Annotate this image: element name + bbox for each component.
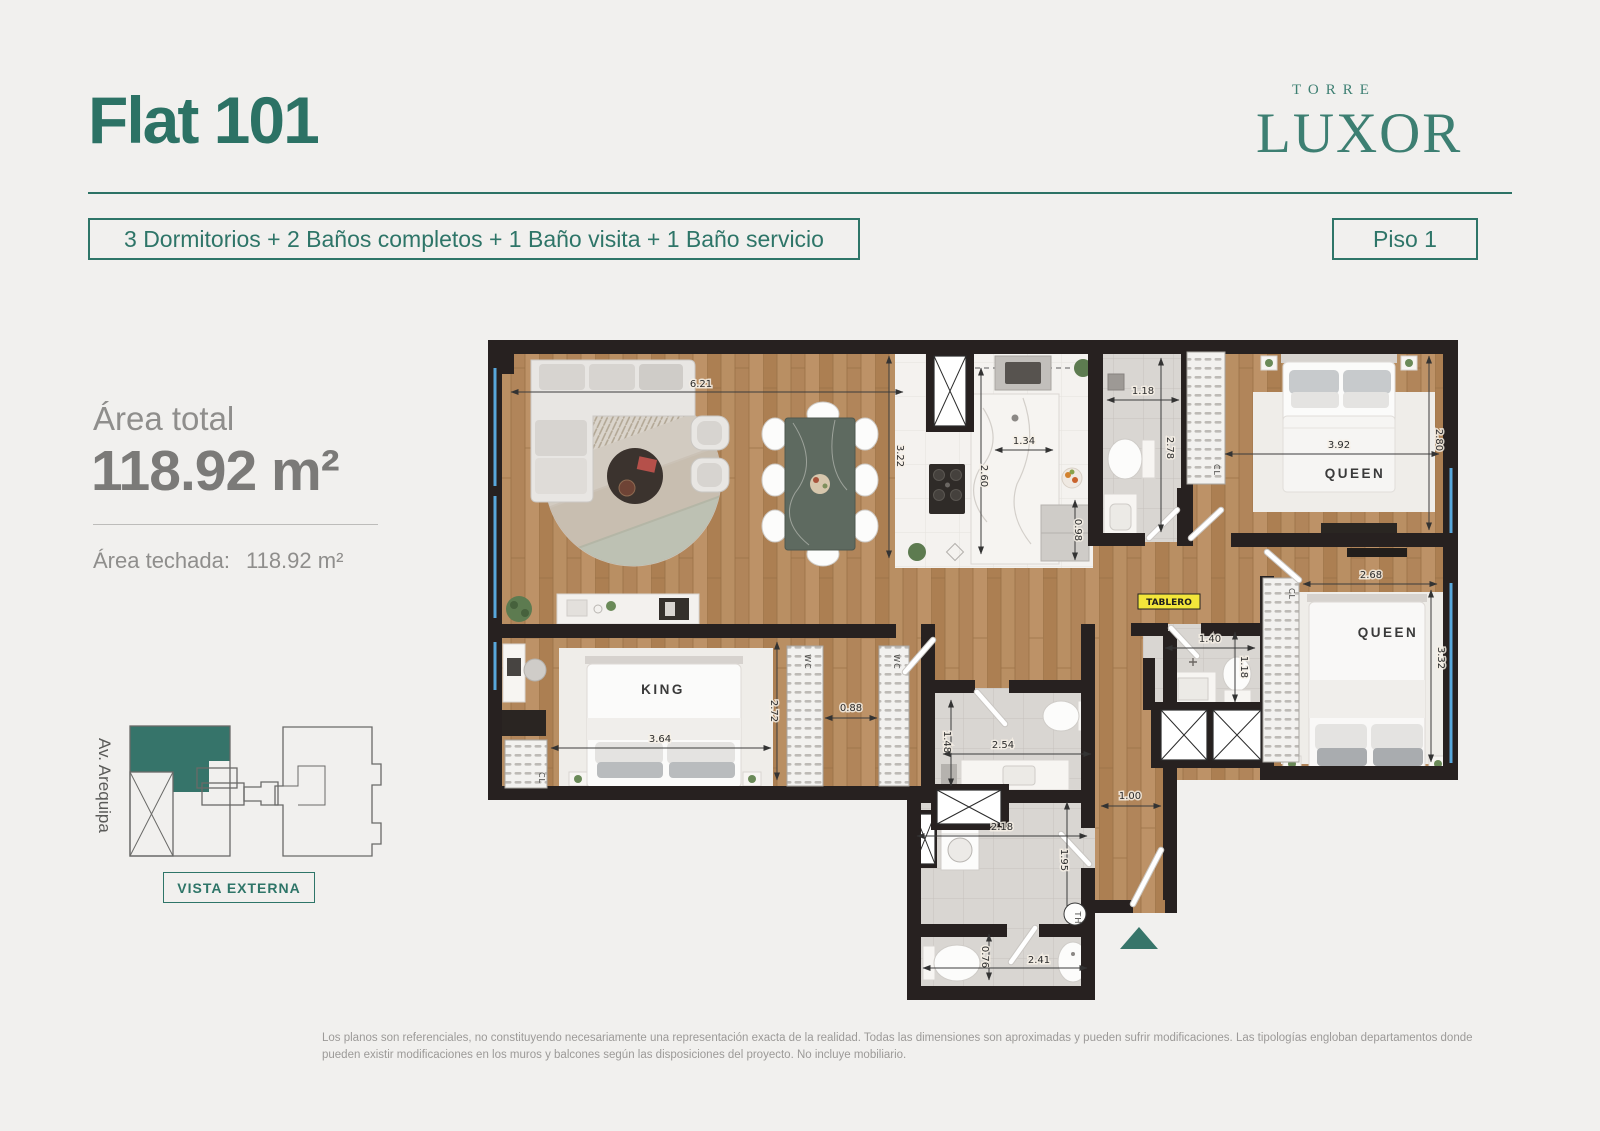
dim-king-width: 3.64 <box>649 734 671 745</box>
th-marker: TH <box>1064 903 1086 925</box>
keyplan-right-building <box>275 727 381 856</box>
king-label: KING <box>641 682 685 697</box>
dim-bedroom1-width: 3.92 <box>1328 440 1350 451</box>
dim-kitchen-width: 1.34 <box>1013 436 1035 447</box>
closet-queen1-label: CL <box>1212 464 1221 476</box>
floor-plan: 6.21 3.22 1.34 2.60 0.98 1.18 2.78 3.92 … <box>483 328 1483 1008</box>
area-techada-label: Área techada: <box>93 548 230 574</box>
highlighted-unit <box>130 726 230 792</box>
dim-hall-width: 1.00 <box>1119 791 1141 802</box>
tv-icon <box>1347 548 1407 557</box>
keyplan-corridor <box>244 782 278 805</box>
dim-guest-bath-depth: 1.18 <box>1238 656 1249 678</box>
th-label: TH <box>1073 911 1082 925</box>
dim-living-depth: 3.22 <box>894 445 905 467</box>
tablero-badge: TABLERO <box>1138 594 1200 609</box>
dim-laundry-depth: 1.95 <box>1058 849 1069 871</box>
dim-kitchen-depth: 2.60 <box>978 465 989 487</box>
toilet-icon <box>1108 439 1155 479</box>
brand-top-label: TORRE <box>1292 82 1516 99</box>
brand-name-label: LUXOR <box>1256 101 1516 166</box>
vista-externa-badge: VISTA EXTERNA <box>163 872 315 903</box>
closet-queen2-label: CL <box>1287 588 1296 600</box>
closet-king-label: CL <box>537 772 546 784</box>
dresser <box>502 710 546 736</box>
plant-icon <box>506 596 532 622</box>
brand-logo: TORRE LUXOR <box>1256 82 1516 166</box>
dim-bath2-width: 2.54 <box>992 740 1014 751</box>
header-divider <box>88 192 1512 194</box>
coffee-table <box>607 448 663 504</box>
shower-fixture <box>1108 374 1124 390</box>
area-techada-value: 118.92 m² <box>246 548 343 574</box>
dim-guest-bath-width: 1.40 <box>1199 634 1221 645</box>
walkin1-label: WC <box>803 654 812 670</box>
dim-living-width: 6.21 <box>690 379 712 390</box>
dim-kitchen-pass: 0.98 <box>1072 519 1083 541</box>
dim-closet-gap: 0.88 <box>840 703 862 714</box>
bed-king <box>585 656 743 788</box>
toilet-icon <box>923 945 980 981</box>
washer-icon <box>941 826 979 870</box>
area-total-value: 118.92 m² <box>91 438 339 504</box>
dim-bath1-width: 1.18 <box>1132 386 1154 397</box>
dim-king-depth: 2.72 <box>768 700 779 722</box>
key-plan <box>95 706 425 871</box>
area-techada: Área techada: 118.92 m² <box>93 548 343 574</box>
dim-bedroom2-depth: 3.32 <box>1435 647 1446 669</box>
bath-mat <box>941 764 957 786</box>
queen1-label: QUEEN <box>1325 466 1386 481</box>
area-divider <box>93 524 378 525</box>
queen2-label: QUEEN <box>1358 625 1419 640</box>
tablero-label: TABLERO <box>1146 598 1192 608</box>
closet-queen2 <box>1263 578 1299 762</box>
floor-badge: Piso 1 <box>1332 218 1478 260</box>
walkin2-label: WC <box>892 654 901 670</box>
dining-set <box>762 402 878 566</box>
plant-icon <box>908 543 926 561</box>
typology-badge: 3 Dormitorios + 2 Baños completos + 1 Ba… <box>88 218 860 260</box>
dim-bedroom2-width: 2.68 <box>1360 570 1382 581</box>
entry-arrow-icon <box>1120 927 1158 949</box>
area-total-label: Área total <box>93 400 234 438</box>
desk-chair <box>524 659 546 681</box>
dim-laundry-width: 2.18 <box>991 822 1013 833</box>
disclaimer-text: Los planos son referenciales, no constit… <box>322 1030 1512 1065</box>
page-title: Flat 101 <box>88 82 318 158</box>
dim-bedroom1-depth: 2.80 <box>1433 429 1444 451</box>
dim-service-depth: 0.76 <box>979 946 990 968</box>
dim-bath1-depth: 2.78 <box>1164 437 1175 459</box>
bed-queen-2 <box>1307 594 1427 772</box>
dim-service-width: 2.41 <box>1028 955 1050 966</box>
tv-console <box>1321 523 1397 534</box>
dim-bath2-depth: 1.48 <box>941 731 952 753</box>
